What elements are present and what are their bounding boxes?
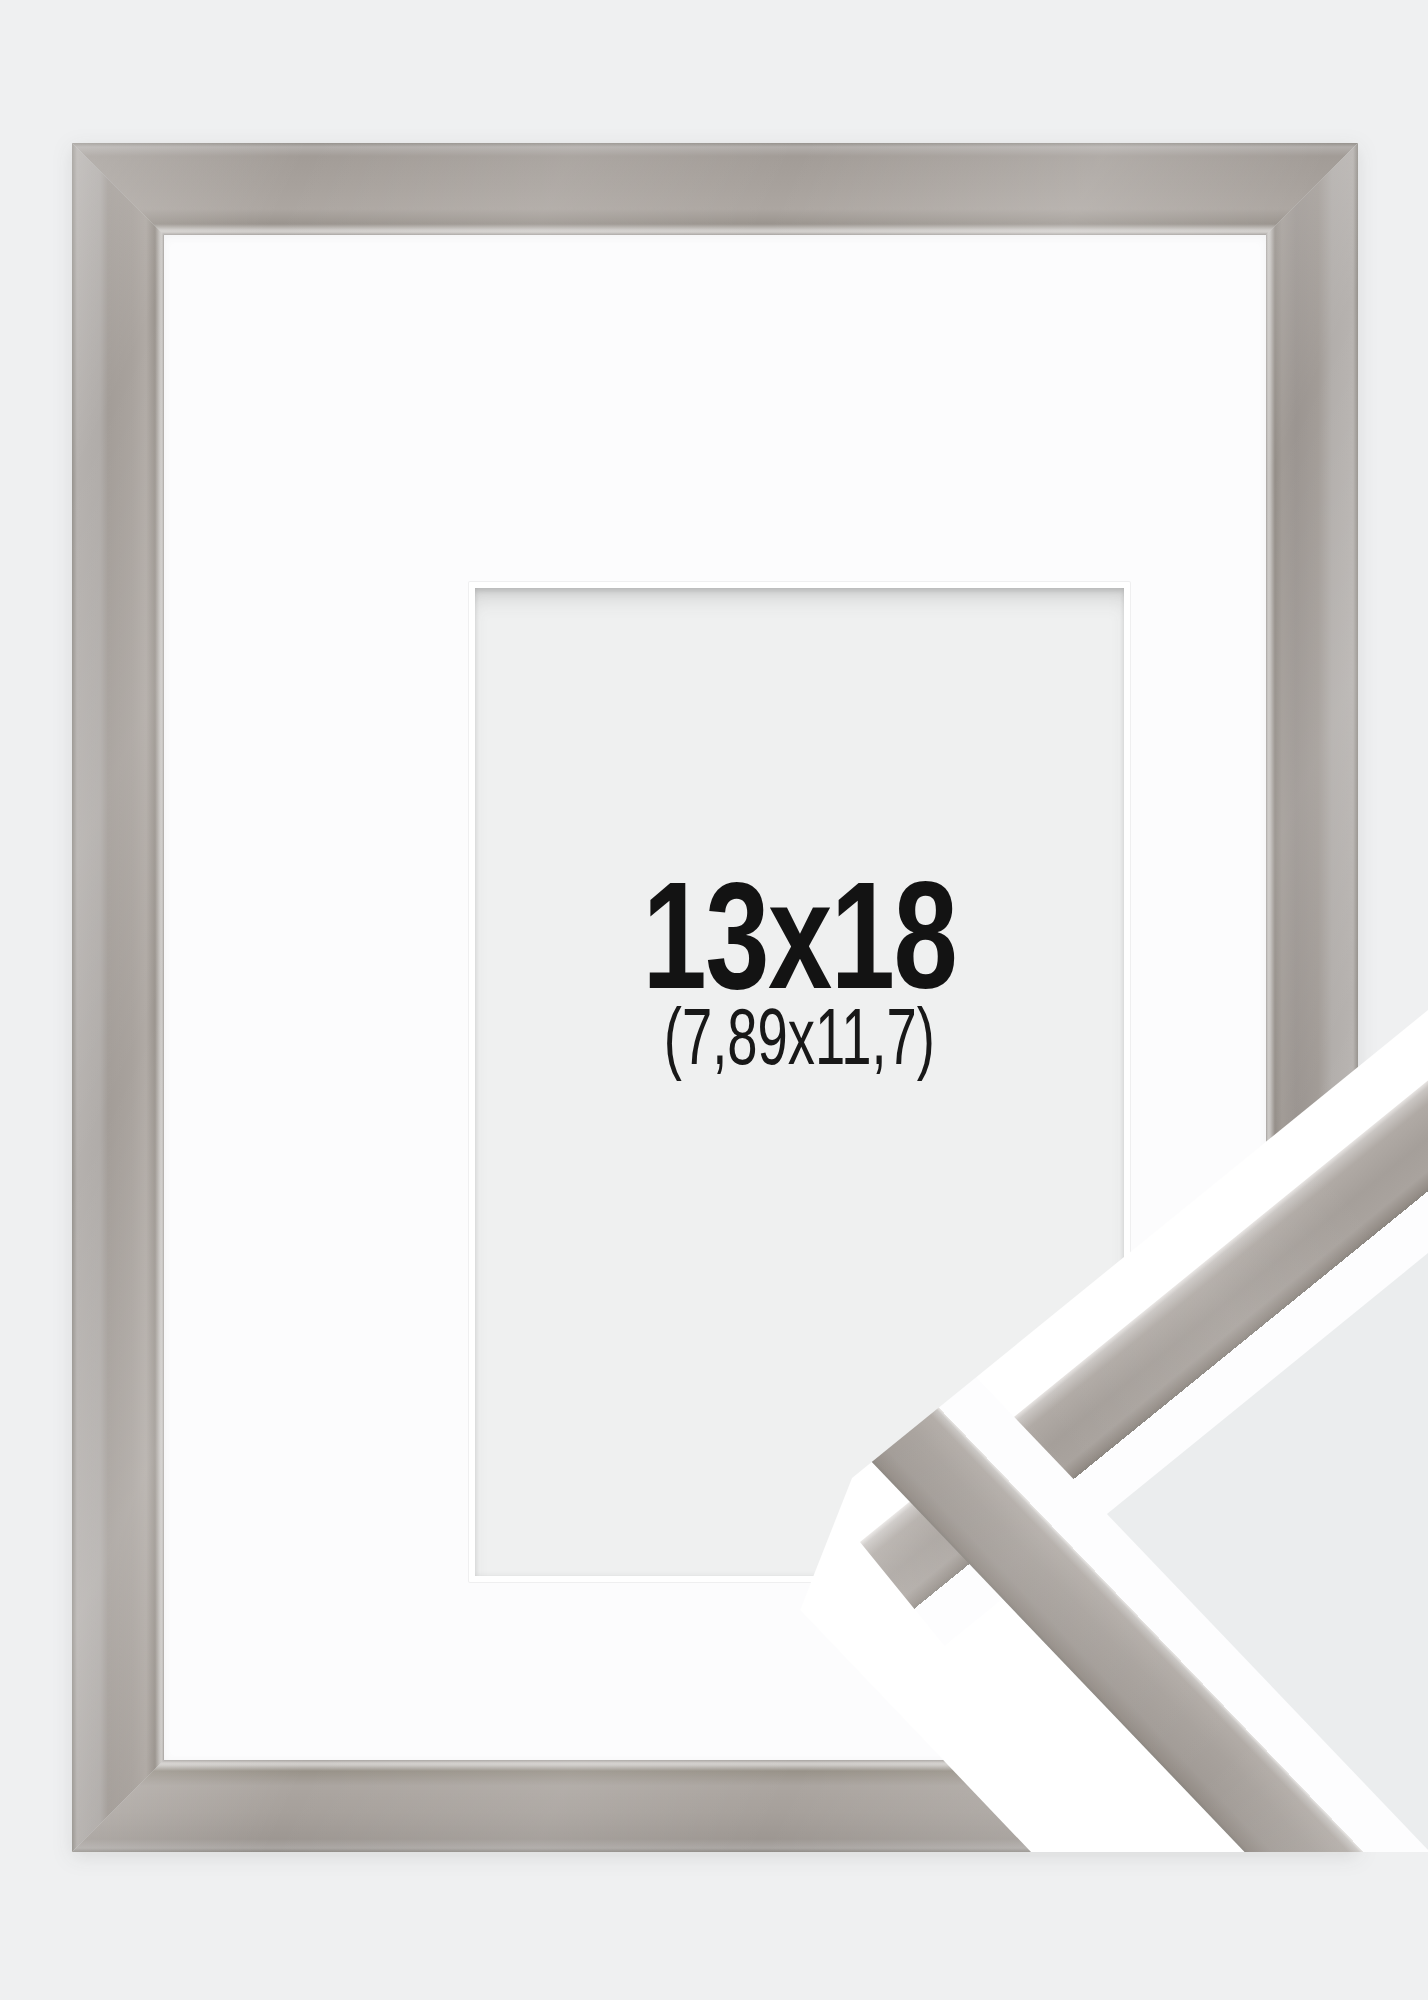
product-photo: 13x18 (7,89x11,7) — [0, 0, 1428, 2000]
inner-size-label: (7,89x11,7) — [664, 997, 935, 1077]
frame-left-moulding — [72, 143, 164, 1852]
frame-top-moulding — [72, 143, 1358, 235]
size-label: 13x18 — [643, 859, 957, 1011]
